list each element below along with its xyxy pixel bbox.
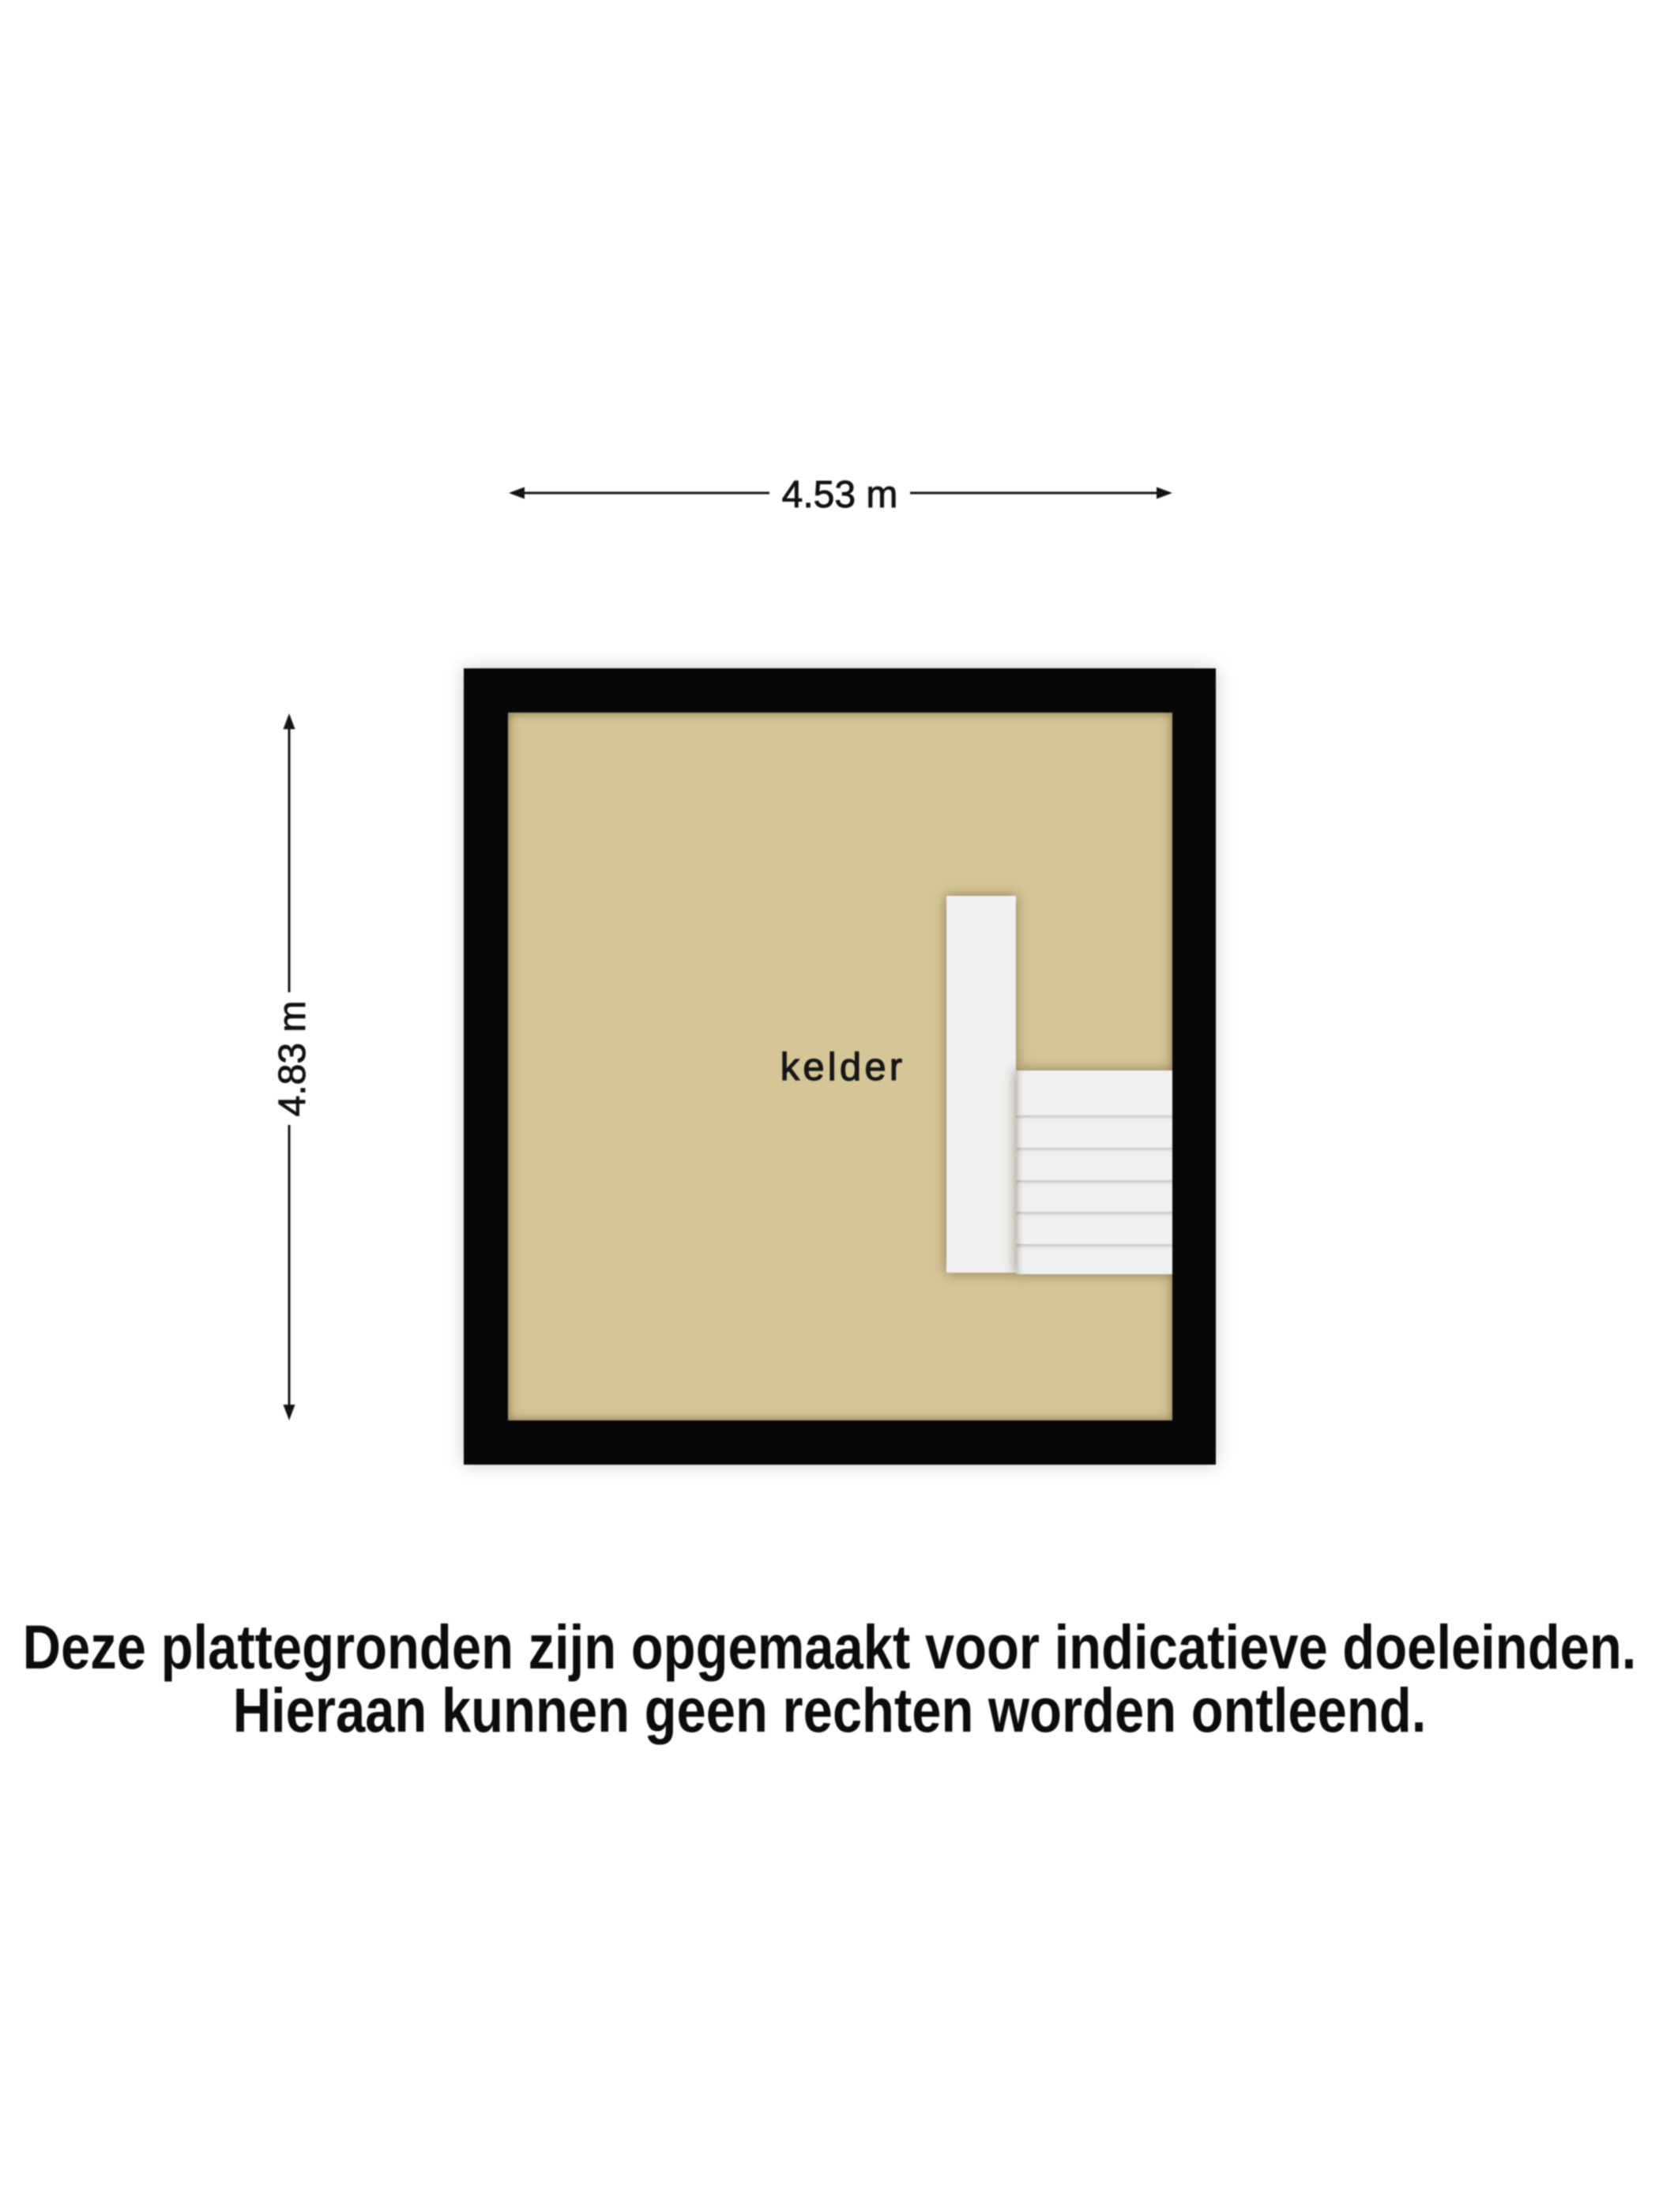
svg-text:4.83 m: 4.83 m	[272, 1001, 314, 1117]
svg-text:4.53 m: 4.53 m	[782, 474, 898, 516]
